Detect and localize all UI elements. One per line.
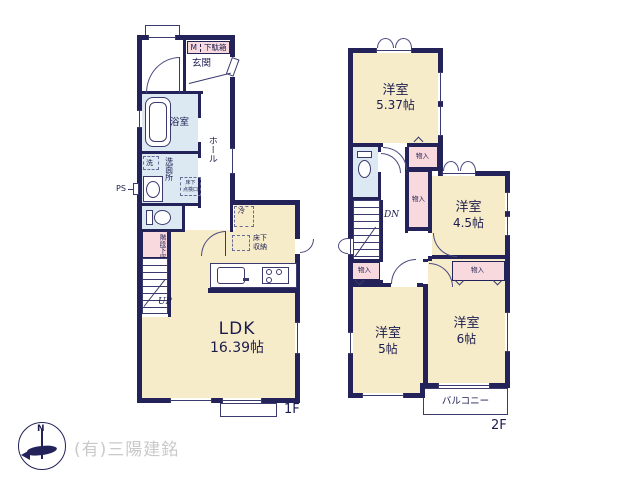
window — [505, 312, 510, 352]
bathroom-label: 浴室 — [170, 117, 189, 128]
entrance-label: 玄関 — [192, 58, 211, 69]
closet-d-label: 物入 — [471, 267, 484, 275]
room-45-label: 洋室 4.5帖 — [432, 180, 505, 250]
toilet-tank — [357, 151, 372, 158]
stairs-down-label: DN — [384, 210, 399, 221]
compass-north-label: N — [37, 424, 45, 435]
storage-room-door-arc — [146, 57, 180, 93]
compass-icon: N — [18, 422, 66, 470]
meter-divider — [200, 44, 201, 52]
entrance-step-line — [189, 73, 231, 84]
window — [438, 106, 443, 136]
ldk-name: LDK — [219, 319, 256, 339]
ldk-left-area — [142, 317, 171, 398]
casement-window-arc — [395, 38, 412, 48]
closet-c-area: 物入 — [351, 262, 380, 280]
room-537-name: 洋室 — [382, 83, 408, 99]
meter-shoebox-box: M 下駄箱 — [187, 41, 230, 54]
bathroom-doorway — [198, 118, 201, 142]
closet-b-area: 物入 — [408, 171, 430, 228]
under-stair-storage-label: 階段下収納 — [145, 234, 167, 258]
wall — [348, 280, 383, 283]
floor-storage-label: 床下 収納 — [253, 234, 269, 252]
porch-step — [220, 403, 277, 417]
closet-b-label: 物入 — [412, 196, 425, 204]
washroom-label: 洗面所 — [164, 157, 174, 195]
floor2-label: 2F — [491, 418, 507, 434]
room-6-label: 洋室 6帖 — [428, 288, 505, 374]
wall — [183, 35, 186, 91]
casement-window-arc — [338, 238, 348, 254]
washbasin-bowl — [146, 181, 160, 198]
pipe-space-tick — [128, 189, 133, 190]
window — [362, 393, 404, 398]
window — [505, 192, 510, 212]
window — [438, 383, 490, 388]
floor-hatch-line2: 点検口 — [183, 187, 198, 194]
floor-storage-box — [232, 235, 250, 251]
stove-burner — [266, 269, 272, 275]
meter-label: M — [191, 43, 197, 52]
window — [148, 35, 176, 40]
wall — [405, 143, 408, 233]
room-45-size: 4.5帖 — [453, 216, 484, 230]
window — [505, 216, 510, 236]
kitchen-sink — [217, 267, 245, 284]
wall — [405, 168, 438, 171]
shoebox-label: 下駄箱 — [204, 42, 227, 53]
floor-storage-line1: 床下 — [253, 234, 267, 242]
wall — [380, 200, 383, 262]
window — [348, 238, 353, 255]
company-watermark: (有)三陽建銘 — [74, 440, 179, 460]
window — [222, 398, 262, 403]
window — [137, 110, 142, 128]
balcony-label: バルコニー — [442, 396, 489, 407]
room-5-label: 洋室 5帖 — [353, 298, 423, 384]
wall — [348, 197, 381, 200]
bathtub-inner — [149, 102, 167, 142]
kitchen-counter-wall — [208, 288, 299, 293]
window — [295, 322, 300, 354]
pipe-space-box — [133, 183, 139, 195]
stove-burner — [276, 269, 282, 275]
fridge-label: 冷 — [238, 207, 245, 215]
window — [438, 72, 443, 102]
kitchen-faucet — [243, 278, 249, 281]
window — [170, 398, 212, 403]
closet-c-label: 物入 — [358, 267, 371, 275]
stove-burner — [266, 277, 272, 283]
room-537-label: 洋室 5.37帖 — [353, 60, 438, 135]
room-537-size: 5.37帖 — [376, 98, 415, 112]
room-5-size: 5帖 — [378, 342, 398, 356]
casement-window-arc — [377, 38, 394, 48]
room-6-name: 洋室 — [453, 316, 479, 332]
floor-storage-line2: 収納 — [253, 243, 267, 251]
wall — [230, 205, 233, 232]
hall-to-ldk-door-leaf — [225, 231, 226, 256]
compass-bird — [27, 444, 58, 456]
casement-window-arc — [460, 161, 476, 171]
toilet-bowl — [358, 160, 371, 178]
hall-label: ホール — [206, 136, 217, 180]
window — [442, 171, 476, 176]
washroom-doorway — [198, 158, 201, 178]
wall — [182, 203, 185, 232]
window — [376, 48, 412, 53]
room-5-door-arc — [391, 259, 416, 284]
wall — [230, 200, 300, 205]
ldk-size: 16.39帖 — [210, 340, 264, 357]
floor-hatch-label: 床下 点検口 — [180, 179, 201, 194]
ldk-main-area — [171, 230, 295, 398]
pipe-space-label: PS — [116, 184, 126, 194]
ldk-label: LDK 16.39帖 — [182, 316, 292, 360]
wall — [137, 398, 300, 403]
wall — [295, 200, 300, 403]
wall — [137, 229, 185, 232]
storage-room-door-leaf — [179, 57, 180, 93]
under-stair-storage-area: 階段下収納 — [142, 231, 168, 258]
floorplan-canvas: 階段下収納 M 下駄箱 — [0, 0, 640, 480]
balcony: バルコニー — [423, 388, 508, 415]
closet-a-label: 物入 — [416, 153, 429, 161]
room-5-name: 洋室 — [375, 326, 401, 342]
floor1-label: 1F — [284, 402, 300, 418]
casement-window-arc — [443, 161, 459, 171]
toilet-tank — [146, 210, 153, 225]
compass-bird-tail — [21, 450, 30, 460]
back-door-arc — [300, 239, 314, 253]
closet-a-area: 物入 — [408, 146, 438, 168]
room-45-name: 洋室 — [455, 200, 481, 216]
wall — [348, 259, 383, 262]
window — [230, 148, 235, 174]
washer-label: 洗 — [146, 159, 153, 167]
room-6-size: 6帖 — [457, 332, 477, 346]
room-6-doorway — [423, 262, 428, 284]
wall — [137, 203, 201, 206]
toilet-bowl — [154, 210, 171, 225]
wall — [137, 151, 201, 154]
wall — [428, 255, 509, 259]
stairs-up-label: UP — [158, 297, 172, 308]
